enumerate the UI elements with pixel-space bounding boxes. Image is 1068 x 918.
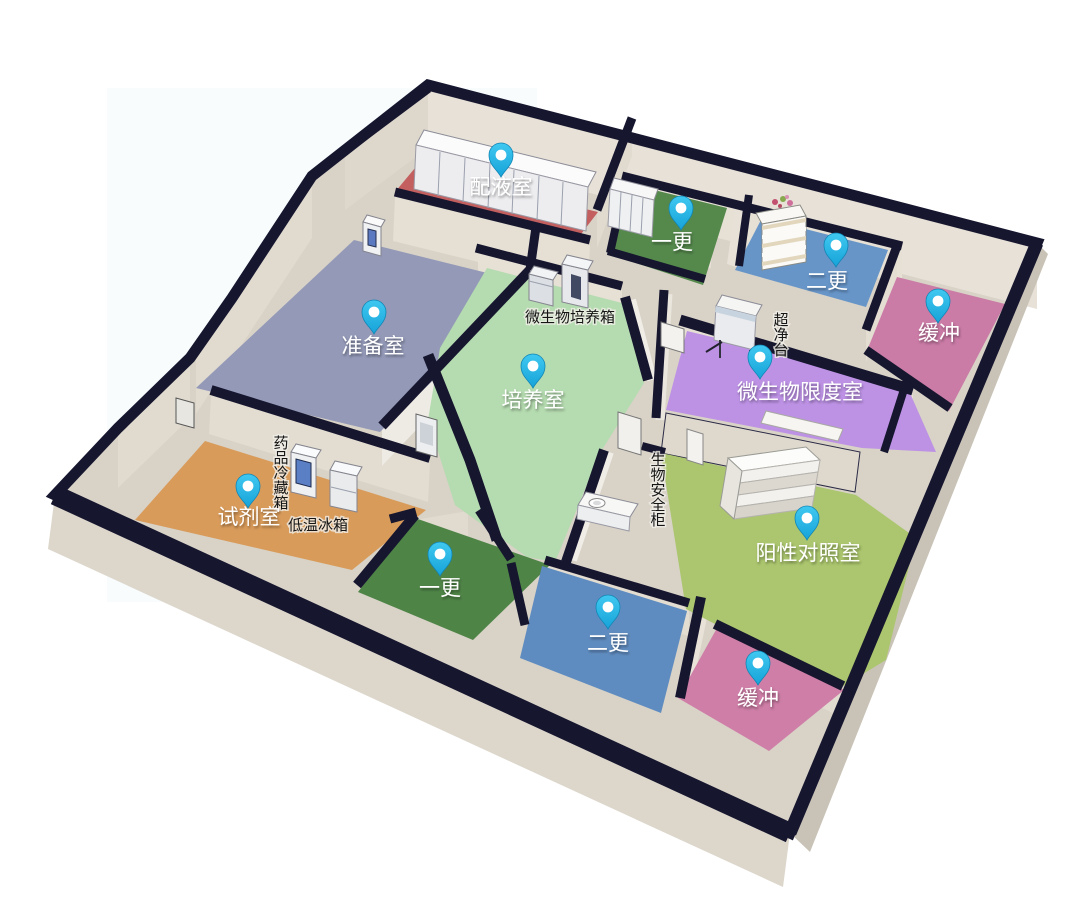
furniture bbox=[368, 229, 376, 247]
equipment-label-chaojingtai: 净 bbox=[773, 327, 788, 344]
furniture bbox=[296, 459, 311, 487]
room-label-yigeng-top: 一更 bbox=[651, 231, 693, 254]
equipment-label-yaopin-lengcangxiang: 冷 bbox=[273, 465, 288, 482]
room-label-peiyeshi: 配液室 bbox=[470, 176, 533, 199]
room-label-peiyangshi: 培养室 bbox=[502, 389, 565, 412]
pin-dot bbox=[753, 658, 764, 669]
pin-dot bbox=[933, 296, 944, 307]
floorplan-canvas: 微生物培养箱微生物培养箱超超净净台台药药品品冷冷藏藏箱箱低温冰箱低温冰箱生生物物… bbox=[0, 0, 1068, 918]
equipment-label-shengwu-anquangui: 安 bbox=[650, 482, 665, 499]
equipment-label-yaopin-lengcangxiang: 品 bbox=[273, 450, 288, 467]
room-label-ergeng-top: 二更 bbox=[806, 270, 848, 293]
equipment-label-chaojingtai: 超 bbox=[773, 312, 788, 329]
room-label-yangxing-duizhaoshi: 阳性对照室 bbox=[756, 542, 861, 565]
pin-dot bbox=[831, 240, 842, 251]
room-label-shijishi: 试剂室 bbox=[218, 506, 281, 529]
equipment-label-shengwu-anquangui: 柜 bbox=[650, 512, 665, 529]
furniture bbox=[593, 501, 601, 505]
room-label-zhunbeishi: 准备室 bbox=[342, 335, 405, 358]
pin-dot bbox=[802, 513, 813, 524]
furniture bbox=[176, 398, 194, 428]
wall-cap bbox=[530, 227, 536, 270]
flower-decoration bbox=[787, 200, 793, 206]
equipment-label-weishengwu-peiyangxiang: 微生物培养箱 bbox=[525, 309, 615, 326]
equipment-label-yaopin-lengcangxiang: 药 bbox=[273, 435, 288, 452]
room-label-huanchong-bottom: 缓冲 bbox=[737, 687, 779, 710]
furniture bbox=[420, 422, 433, 446]
pin-dot bbox=[528, 361, 539, 372]
room-label-weishengwu-xiandushi: 微生物限度室 bbox=[737, 381, 863, 404]
room-label-ergeng-bottom: 二更 bbox=[587, 632, 629, 655]
equipment-label-shengwu-anquangui: 全 bbox=[650, 496, 665, 514]
flower-decoration bbox=[785, 195, 789, 199]
furniture bbox=[618, 412, 641, 455]
equipment-label-diwen-bingxiang: 低温冰箱 bbox=[288, 517, 348, 534]
pin-dot bbox=[496, 150, 507, 161]
equipment-label-shengwu-anquangui: 物 bbox=[650, 467, 665, 484]
furniture bbox=[687, 429, 703, 465]
flower-decoration bbox=[778, 204, 782, 208]
pin-dot bbox=[435, 549, 446, 560]
furniture bbox=[330, 470, 357, 512]
pin-dot bbox=[676, 203, 687, 214]
pin-dot bbox=[603, 602, 614, 613]
room-label-yigeng-bottom: 一更 bbox=[419, 577, 461, 600]
equipment-label-chaojingtai: 台 bbox=[773, 342, 788, 359]
pin-dot bbox=[369, 307, 380, 318]
equipment-label-yaopin-lengcangxiang: 藏 bbox=[273, 480, 288, 497]
room-label-huanchong-top: 缓冲 bbox=[918, 322, 960, 345]
pin-dot bbox=[755, 352, 766, 363]
furniture bbox=[571, 274, 581, 300]
pin-dot bbox=[243, 481, 254, 492]
flower-decoration bbox=[772, 199, 778, 205]
equipment-label-shengwu-anquangui: 生 bbox=[650, 452, 665, 469]
floorplan-page: 微生物培养箱微生物培养箱超超净净台台药药品品冷冷藏藏箱箱低温冰箱低温冰箱生生物物… bbox=[0, 0, 1068, 918]
